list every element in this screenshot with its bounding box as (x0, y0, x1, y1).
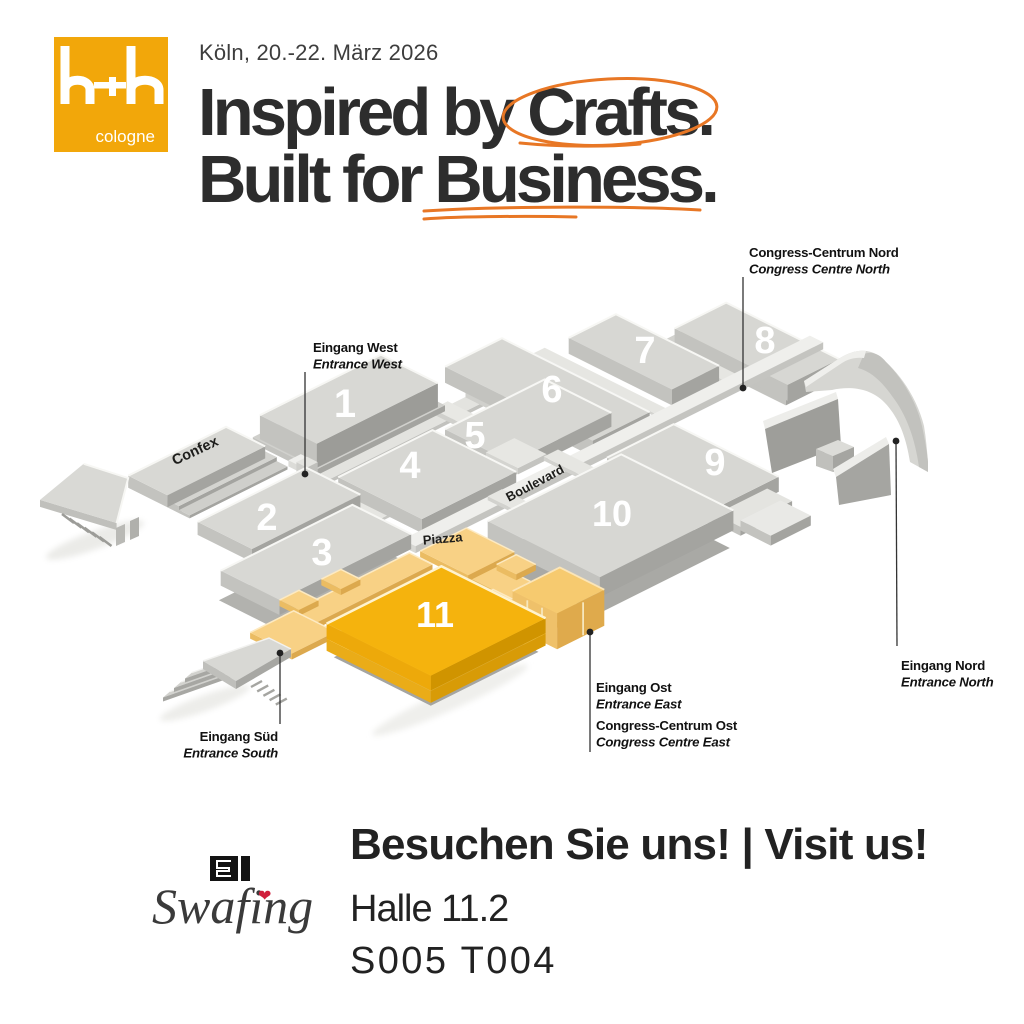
svg-text:Eingang Süd: Eingang Süd (200, 729, 279, 744)
svg-text:10: 10 (592, 493, 632, 534)
svg-text:7: 7 (634, 330, 655, 372)
svg-text:Congress Centre East: Congress Centre East (596, 735, 731, 750)
svg-text:Congress Centre North: Congress Centre North (749, 262, 890, 277)
svg-text:9: 9 (704, 442, 725, 484)
svg-text:8: 8 (754, 320, 775, 362)
svg-text:Eingang Ost: Eingang Ost (596, 680, 672, 695)
svg-text:1: 1 (334, 382, 356, 426)
svg-text:Eingang Nord: Eingang Nord (901, 658, 985, 673)
svg-text:Entrance North: Entrance North (901, 675, 994, 690)
svg-text:Entrance West: Entrance West (313, 357, 403, 372)
svg-text:11: 11 (416, 594, 454, 635)
svg-text:2: 2 (256, 497, 277, 539)
svg-text:Congress-Centrum Nord: Congress-Centrum Nord (749, 245, 899, 260)
svg-text:Entrance East: Entrance East (596, 697, 682, 712)
svg-text:3: 3 (311, 532, 332, 574)
svg-text:4: 4 (399, 445, 420, 487)
svg-text:Entrance South: Entrance South (183, 746, 278, 761)
svg-text:Eingang West: Eingang West (313, 340, 398, 355)
svg-text:5: 5 (464, 415, 485, 457)
svg-text:Congress-Centrum Ost: Congress-Centrum Ost (596, 718, 738, 733)
svg-text:6: 6 (541, 369, 562, 411)
